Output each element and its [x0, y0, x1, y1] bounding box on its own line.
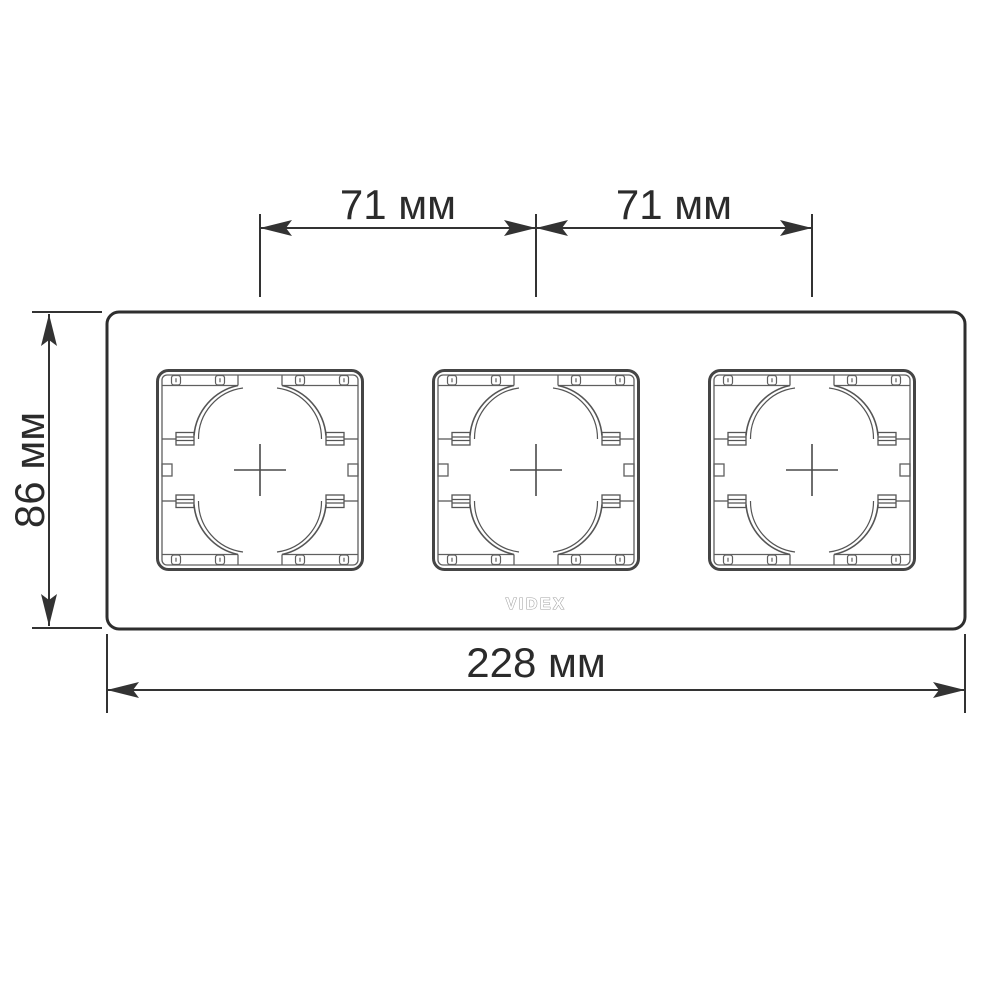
- brand-logo: VIDEX: [506, 596, 567, 613]
- dimension-label-width: 228 мм: [466, 639, 606, 686]
- drawing-canvas: 71 мм 71 мм 86 мм 228 мм VIDEX: [0, 0, 1000, 1000]
- dimension-label-height: 86 мм: [6, 412, 53, 528]
- dimension-label-spacing-left: 71 мм: [340, 181, 456, 228]
- technical-drawing: 71 мм 71 мм 86 мм 228 мм VIDEX: [0, 0, 1000, 1000]
- dimension-label-spacing-right: 71 мм: [616, 181, 732, 228]
